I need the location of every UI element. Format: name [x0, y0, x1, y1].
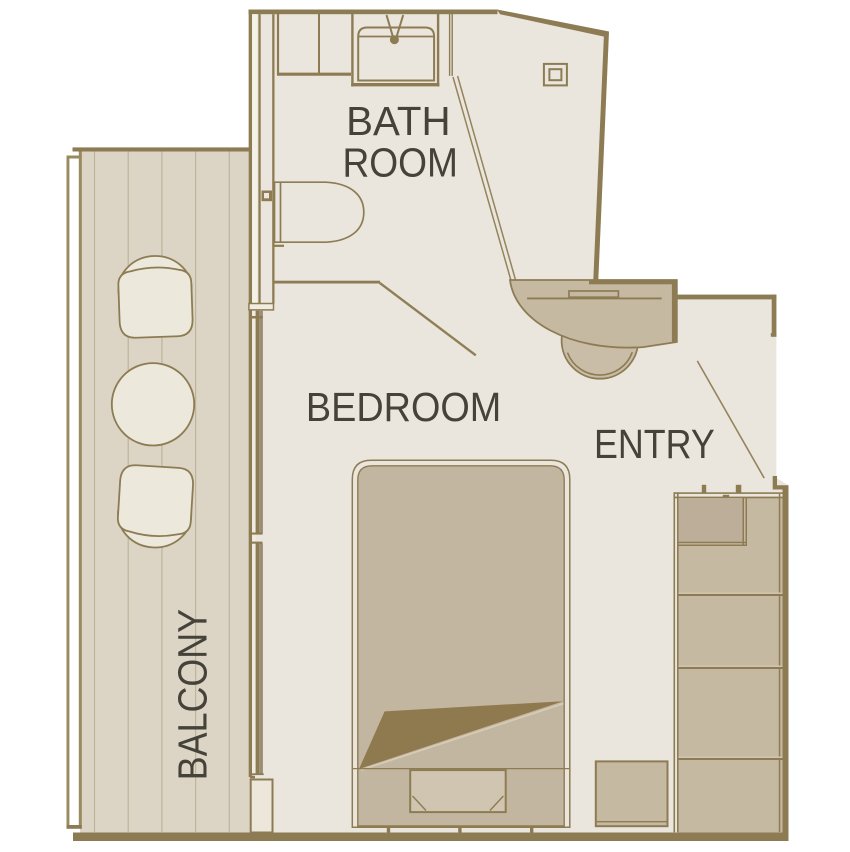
svg-text:BATH: BATH: [346, 98, 450, 145]
svg-text:ROOM: ROOM: [342, 141, 457, 186]
svg-text:ENTRY: ENTRY: [594, 422, 715, 468]
svg-text:BEDROOM: BEDROOM: [306, 385, 501, 431]
svg-text:BALCONY: BALCONY: [170, 609, 216, 780]
